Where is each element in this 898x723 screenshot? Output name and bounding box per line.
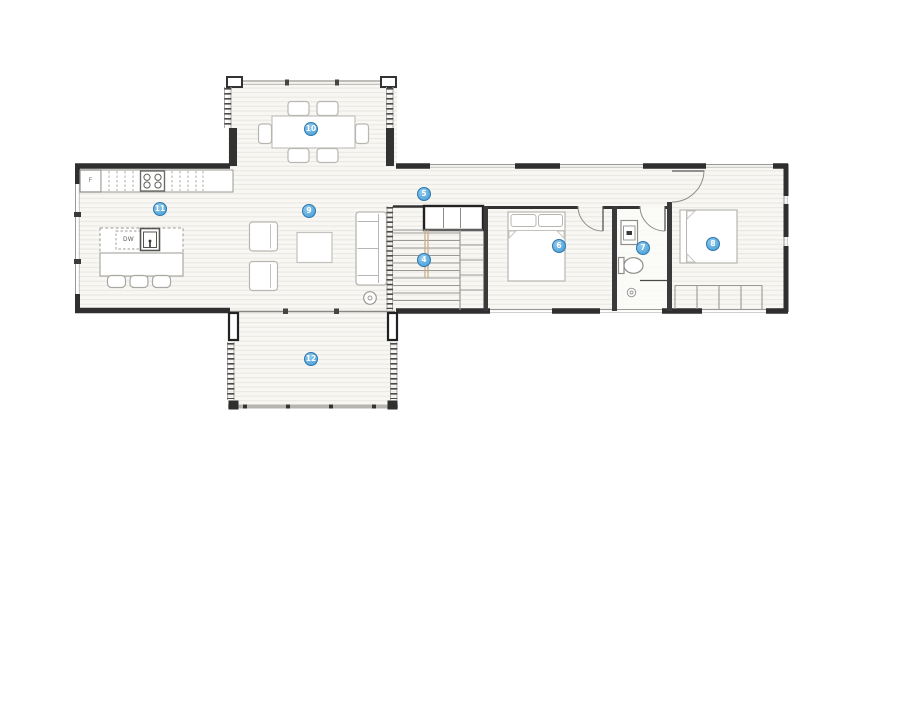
floor-plan-drawing xyxy=(0,0,898,723)
window-mullion xyxy=(285,80,289,86)
room-marker-stairs: 4 xyxy=(417,253,431,267)
marker-number: 12 xyxy=(306,355,316,363)
deck-post xyxy=(388,313,397,340)
window-mullion xyxy=(335,80,339,86)
dining-chair xyxy=(288,102,309,116)
dining-chair xyxy=(259,124,272,144)
armchair xyxy=(250,222,278,251)
marker-number: 7 xyxy=(640,244,645,252)
window-jamb xyxy=(74,259,81,264)
dining-chair xyxy=(288,149,309,163)
toilet-bowl xyxy=(624,258,643,274)
dining-chair xyxy=(356,124,369,144)
room-marker-bedroom-1: 6 xyxy=(552,239,566,253)
kitchen-island-body xyxy=(100,253,183,276)
toilet-tank xyxy=(619,258,625,274)
room-marker-kitchen: 11 xyxy=(153,202,167,216)
room-marker-bedroom-2: 8 xyxy=(706,237,720,251)
wall xyxy=(667,202,672,311)
deck-post xyxy=(229,401,239,410)
floor-plan: F DW 4 5 6 7 8 9 10 11 12 xyxy=(0,0,898,723)
wall xyxy=(612,206,617,311)
bar-stool xyxy=(130,276,148,288)
deck-post xyxy=(229,313,238,340)
pillow xyxy=(539,215,563,227)
closet xyxy=(424,206,483,230)
bar-stool xyxy=(108,276,126,288)
marker-number: 6 xyxy=(556,242,561,250)
room-marker-dining-room: 10 xyxy=(304,122,318,136)
marker-number: 8 xyxy=(710,240,715,248)
room-marker-living-room: 9 xyxy=(302,204,316,218)
marker-number: 11 xyxy=(155,205,165,213)
floor-lamp xyxy=(364,292,377,305)
marker-number: 10 xyxy=(306,125,316,133)
room-marker-bathroom: 7 xyxy=(636,241,650,255)
fridge-label: F xyxy=(84,178,97,184)
dining-chair xyxy=(317,149,338,163)
wall xyxy=(484,206,489,311)
coffee-table xyxy=(297,233,332,263)
window-jamb xyxy=(74,212,81,217)
door-jamb xyxy=(334,309,339,315)
corner-post xyxy=(381,77,396,87)
bar-stool xyxy=(153,276,171,288)
pillow xyxy=(511,215,536,227)
kitchen-counter xyxy=(101,170,233,192)
armchair xyxy=(250,262,278,291)
sofa xyxy=(356,212,387,285)
dining-chair xyxy=(317,102,338,116)
marker-number: 9 xyxy=(306,207,311,215)
dishwasher-label: DW xyxy=(118,237,139,243)
range-cooktop xyxy=(141,171,165,191)
marker-number: 4 xyxy=(421,256,426,264)
deck-post xyxy=(388,401,398,410)
door-jamb xyxy=(283,309,288,315)
room-marker-deck: 12 xyxy=(304,352,318,366)
marker-number: 5 xyxy=(421,190,426,198)
room-marker-hallway: 5 xyxy=(417,187,431,201)
corner-post xyxy=(227,77,242,87)
floor-drain xyxy=(627,288,635,296)
